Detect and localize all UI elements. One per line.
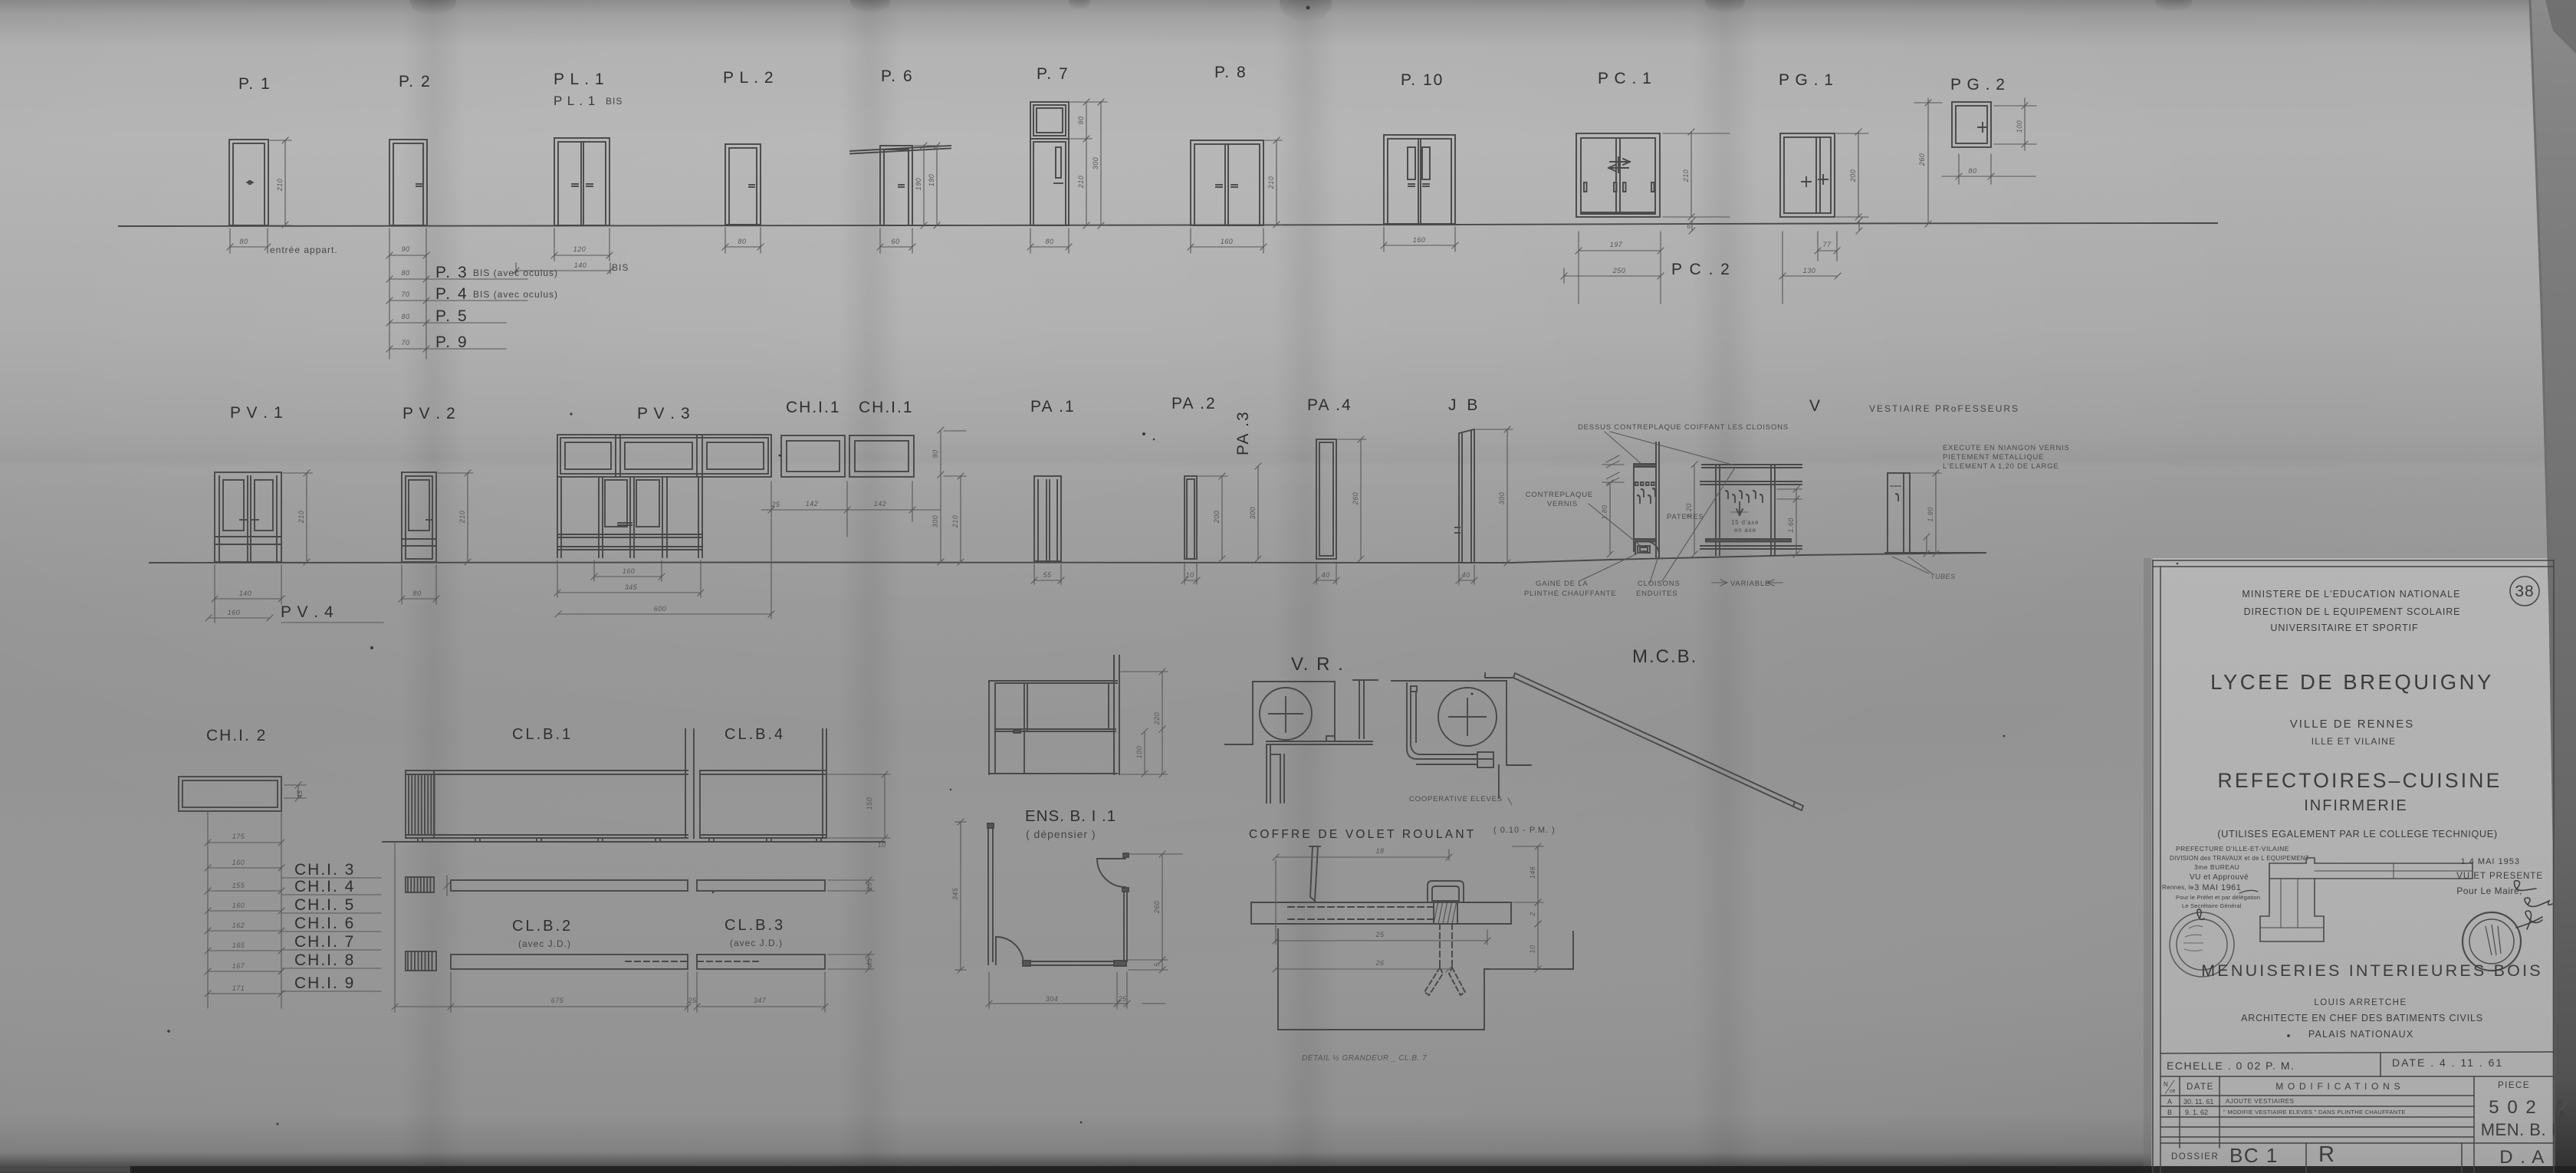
svg-text:B: B (2559, 1110, 2564, 1119)
svg-text:ILLE ET VILAINE: ILLE ET VILAINE (2311, 736, 2397, 747)
svg-text:MENUISERIES INTERIEURES BO: MENUISERIES INTERIEURES BOIS (2201, 961, 2543, 980)
svg-text:ECHELLE . 0 02 P. M.: ECHELLE . 0 02 P. M. (2167, 1060, 2295, 1072)
svg-text:25: 25 (1117, 995, 1127, 1003)
svg-text:80: 80 (738, 238, 746, 245)
svg-text:210: 210 (1682, 169, 1690, 183)
svg-text:160: 160 (623, 567, 636, 575)
svg-text:en axe: en axe (1734, 527, 1756, 534)
svg-text:LYCEE DE BREQUIGNY: LYCEE DE BREQUIGNY (2210, 670, 2494, 694)
svg-text:260: 260 (1153, 901, 1161, 915)
svg-text:CL.B.4: CL.B.4 (724, 726, 785, 743)
svg-text:210: 210 (297, 511, 305, 524)
svg-text:P C . 2: P C . 2 (1671, 261, 1731, 278)
svg-text:304: 304 (1046, 995, 1059, 1003)
svg-text:PIECE: PIECE (2498, 1081, 2530, 1090)
svg-text:UNIVERSITAIRE ET SPORTIF: UNIVERSITAIRE ET SPORTIF (2270, 623, 2418, 633)
svg-text:ce: ce (2170, 1089, 2176, 1094)
svg-text:25: 25 (770, 501, 780, 508)
svg-text:PA .3: PA .3 (1234, 410, 1252, 455)
svg-text:55: 55 (1043, 571, 1052, 579)
svg-text:PREFECTURE D'ILLE-ET-VILAINE: PREFECTURE D'ILLE-ET-VILAINE (2176, 845, 2289, 853)
svg-text:EXECUTE EN NIANGON VERNIS: EXECUTE EN NIANGON VERNIS (1943, 444, 2070, 452)
svg-text:V: V (1809, 397, 1822, 415)
svg-text:P. 4: P. 4 (435, 285, 468, 303)
svg-text:PALAIS NATIONAUX: PALAIS NATIONAUX (2302, 1029, 2414, 1040)
svg-text:" MODIFIE VESTIAIRE ELEVES ": " MODIFIE VESTIAIRE ELEVES " DANS PLINTH… (2223, 1109, 2406, 1115)
svg-text:P. 2: P. 2 (399, 73, 432, 90)
svg-text:PLINTHE CHAUFFANTE: PLINTHE CHAUFFANTE (1524, 590, 1617, 598)
svg-text:DIVISION des TRAVAUX et de L E: DIVISION des TRAVAUX et de L EQUIPEMENT (2170, 855, 2309, 862)
svg-text:2: 2 (1529, 912, 1536, 917)
svg-text:P V . 3: P V . 3 (637, 405, 691, 422)
svg-text:CH.I. 6: CH.I. 6 (294, 915, 355, 932)
svg-text:120: 120 (573, 245, 586, 253)
svg-text:Le Secrétaire Général: Le Secrétaire Général (2182, 902, 2242, 909)
svg-text:38: 38 (2515, 583, 2534, 600)
svg-text:ENDUITES: ENDUITES (1636, 590, 1677, 598)
svg-text:COOPERATIVE ELEVES: COOPERATIVE ELEVES (1409, 795, 1503, 803)
svg-text:260: 260 (1352, 492, 1359, 506)
svg-text:160: 160 (1221, 238, 1234, 245)
svg-text:Pour le Préfet et par délégati: Pour le Préfet et par délégation (2176, 894, 2260, 901)
svg-text:( dépensier ): ( dépensier ) (1026, 828, 1096, 840)
svg-text:70: 70 (401, 291, 409, 298)
svg-text:ARCHITECTE EN CHEF DES BAT: ARCHITECTE EN CHEF DES BATIMENTS CIVILS (2241, 1013, 2483, 1024)
svg-text:260: 260 (1918, 153, 1926, 167)
svg-text:( 0.10 - P.M. ): ( 0.10 - P.M. ) (1493, 826, 1556, 835)
svg-text:130: 130 (1803, 267, 1816, 274)
svg-text:ENS. B. I .1: ENS. B. I .1 (1025, 807, 1116, 825)
svg-text:3me BUREAU: 3me BUREAU (2194, 863, 2239, 871)
svg-text:160: 160 (228, 609, 241, 616)
svg-text:345: 345 (951, 887, 959, 900)
svg-text:DOSSIER: DOSSIER (2171, 1152, 2219, 1161)
svg-text:BC 1: BC 1 (2229, 1144, 2279, 1167)
svg-text:DESSUS CONTREPLAQUE COIFFANT: DESSUS CONTREPLAQUE COIFFANT LES CLOISON… (1578, 423, 1789, 432)
svg-text:-3 MAI 1961: -3 MAI 1961 (2191, 883, 2241, 892)
svg-text:P. 10: P. 10 (1401, 71, 1444, 89)
svg-text:5 0 2: 5 0 2 (2489, 1097, 2537, 1118)
svg-text:CONTREPLAQUE: CONTREPLAQUE (1526, 491, 1593, 499)
svg-text:80: 80 (1968, 167, 1976, 175)
svg-text:77: 77 (1822, 241, 1832, 248)
svg-text:P. 8: P. 8 (1214, 64, 1247, 81)
svg-text:167: 167 (232, 962, 245, 970)
svg-text:LOUIS ARRETCHE: LOUIS ARRETCHE (2314, 998, 2407, 1007)
svg-text:210: 210 (1077, 176, 1085, 189)
svg-text:200: 200 (1849, 169, 1857, 183)
svg-text:80: 80 (239, 238, 248, 245)
svg-text:80: 80 (1045, 238, 1053, 245)
svg-text:160: 160 (232, 859, 245, 866)
svg-text:140: 140 (239, 590, 252, 597)
svg-text:P C . 1: P C . 1 (1598, 70, 1652, 87)
svg-text:CH.I.1: CH.I.1 (786, 399, 841, 416)
svg-text:MEN. B. I: MEN. B. I (2481, 1120, 2557, 1139)
svg-text:CH.I. 3: CH.I. 3 (294, 861, 355, 879)
svg-text:162: 162 (232, 922, 245, 929)
svg-text:150: 150 (866, 797, 873, 810)
svg-text:45: 45 (296, 790, 304, 799)
svg-text:5: 5 (1153, 962, 1161, 967)
svg-text:155: 155 (232, 882, 245, 889)
svg-text:P L . 1: P L . 1 (554, 71, 605, 88)
svg-text:GAINE DE LA: GAINE DE LA (1536, 580, 1588, 588)
svg-text:190: 190 (928, 174, 935, 187)
svg-text:165: 165 (232, 941, 245, 949)
svg-text:9. 1. 62: 9. 1. 62 (2185, 1109, 2208, 1116)
svg-text:PIETEMENT METALLIQUE: PIETEMENT METALLIQUE (1943, 453, 2044, 462)
svg-text:P V . 2: P V . 2 (402, 405, 456, 422)
svg-text:VESTIAIRE PRoFESSEURS: VESTIAIRE PRoFESSEURS (1869, 403, 2019, 414)
svg-text:TUBES: TUBES (1930, 573, 1956, 580)
svg-text:6: 6 (1687, 222, 1691, 230)
svg-text:M.C.B.: M.C.B. (1632, 646, 1697, 667)
svg-text:300: 300 (1092, 157, 1099, 170)
svg-text:CH.I.1: CH.I.1 (859, 399, 914, 416)
svg-text:(avec J.D.): (avec J.D.) (730, 938, 783, 948)
svg-text:90: 90 (932, 449, 939, 458)
svg-text:Pour Le Maire,: Pour Le Maire, (2456, 886, 2522, 896)
svg-text:25: 25 (1375, 931, 1385, 938)
svg-text:AJOUTE VESTIAIRES: AJOUTE VESTIAIRES (2226, 1098, 2294, 1105)
svg-text:PA .1: PA .1 (1030, 398, 1076, 416)
svg-text:A: A (2167, 1098, 2172, 1106)
svg-text:140: 140 (574, 261, 587, 269)
svg-text:CH.I. 2: CH.I. 2 (206, 727, 267, 744)
svg-text:P G . 2: P G . 2 (1950, 76, 2006, 94)
svg-text:345: 345 (625, 583, 638, 591)
svg-text:P. 7: P. 7 (1037, 65, 1069, 83)
svg-text:CH.I. 8: CH.I. 8 (294, 951, 355, 969)
svg-text:347: 347 (754, 997, 767, 1004)
svg-text:V. R .: V. R . (1291, 654, 1345, 675)
svg-text:25: 25 (687, 997, 697, 1004)
svg-text:210: 210 (951, 515, 959, 529)
svg-text:40: 40 (1461, 571, 1470, 579)
svg-text:CH.I. 4: CH.I. 4 (294, 878, 355, 895)
svg-text:VARIABLE: VARIABLE (1730, 580, 1770, 588)
svg-text:DATE . 4 . 11 . 61: DATE . 4 . 11 . 61 (2392, 1056, 2503, 1069)
svg-text:CH.I. 5: CH.I. 5 (294, 896, 355, 914)
svg-text:CH.I. 7: CH.I. 7 (294, 933, 355, 951)
svg-text:1 4 MAI 1953: 1 4 MAI 1953 (2461, 857, 2520, 866)
svg-text:COFFRE DE VOLET ROULANT: COFFRE DE VOLET ROULANT (1249, 828, 1476, 841)
svg-text:entrée appart.: entrée appart. (270, 245, 338, 255)
svg-text:45: 45 (866, 958, 873, 967)
svg-text:P. 3: P. 3 (435, 264, 468, 281)
svg-text:220: 220 (1153, 712, 1161, 726)
svg-text:CLOISONS: CLOISONS (1638, 580, 1681, 588)
svg-text:10: 10 (1185, 571, 1194, 579)
svg-text:160: 160 (1413, 236, 1426, 244)
svg-text:210: 210 (458, 511, 466, 524)
svg-text:DATE: DATE (2187, 1083, 2214, 1092)
svg-text:146: 146 (1529, 866, 1536, 879)
svg-text:142: 142 (874, 500, 887, 508)
svg-text:30. 11. 61: 30. 11. 61 (2183, 1098, 2213, 1106)
svg-text:25: 25 (866, 882, 873, 892)
svg-text:90: 90 (401, 245, 409, 253)
svg-text:BIS: BIS (612, 262, 629, 273)
svg-text:80: 80 (401, 313, 409, 320)
svg-text:CL.B.3: CL.B.3 (724, 917, 785, 934)
svg-text:100: 100 (1135, 746, 1143, 759)
svg-text:26: 26 (1375, 959, 1384, 967)
svg-text:P. 6: P. 6 (881, 67, 914, 85)
svg-text:REFECTOIRES–CUISINE: REFECTOIRES–CUISINE (2217, 769, 2502, 792)
svg-text:70: 70 (401, 339, 409, 347)
svg-text:Rennes, le: Rennes, le (2162, 884, 2193, 891)
svg-text:1.60: 1.60 (1787, 517, 1795, 533)
svg-text:250: 250 (1612, 267, 1626, 274)
svg-text:P. 5: P. 5 (435, 307, 468, 325)
svg-text:10: 10 (1529, 945, 1536, 953)
svg-text:200: 200 (1213, 511, 1221, 524)
svg-text:1.90: 1.90 (1927, 507, 1934, 522)
svg-text:(UTILISES EGALEMENT PAR LE: (UTILISES EGALEMENT PAR LE COLLEGE TECHN… (2217, 828, 2498, 839)
svg-text:MINISTERE DE L'EDUCATION NA: MINISTERE DE L'EDUCATION NATIONALE (2242, 589, 2460, 600)
svg-text:CL.B.1: CL.B.1 (512, 726, 573, 743)
svg-text:P V . 1: P V . 1 (230, 404, 284, 422)
svg-text:N: N (2164, 1081, 2168, 1088)
svg-text:10: 10 (877, 841, 886, 849)
svg-text:R: R (2318, 1142, 2336, 1167)
svg-text:300: 300 (932, 515, 939, 528)
svg-text:600: 600 (654, 605, 667, 613)
svg-text:BIS: BIS (606, 96, 623, 107)
svg-text:P. 9: P. 9 (435, 333, 468, 351)
svg-text:90: 90 (1077, 116, 1085, 124)
svg-text:VU ET PRESENTE: VU ET PRESENTE (2456, 872, 2543, 881)
svg-text:BIS (avec oculus): BIS (avec oculus) (473, 289, 558, 300)
svg-text:190: 190 (915, 178, 922, 191)
svg-text:INFIRMERIE: INFIRMERIE (2304, 797, 2408, 814)
svg-text:60: 60 (891, 238, 899, 245)
svg-text:210: 210 (276, 179, 284, 192)
svg-text:CL.B.2: CL.B.2 (512, 918, 573, 935)
svg-text:210: 210 (1267, 176, 1275, 190)
svg-text:PA .4: PA .4 (1307, 396, 1352, 414)
svg-text:VU et Approuvé: VU et Approuvé (2190, 873, 2249, 882)
svg-text:175: 175 (232, 833, 245, 840)
svg-text:P. 1: P. 1 (238, 75, 271, 93)
svg-text:171: 171 (232, 984, 245, 992)
svg-text:VERNIS: VERNIS (1547, 500, 1578, 508)
svg-text:18: 18 (1375, 847, 1384, 855)
svg-text:675: 675 (551, 997, 564, 1004)
svg-text:J B: J B (1448, 396, 1480, 414)
svg-text:300: 300 (1249, 507, 1257, 520)
svg-text:L'ELEMENT A 1,20 DE LARGE: L'ELEMENT A 1,20 DE LARGE (1943, 462, 2059, 471)
svg-text:P G . 1: P G . 1 (1779, 71, 1834, 89)
svg-text:80: 80 (401, 269, 409, 277)
svg-text:15 d'axe: 15 d'axe (1731, 519, 1759, 526)
svg-text:(avec J.D.): (avec J.D.) (518, 938, 571, 949)
svg-text:BIS (avec oculus): BIS (avec oculus) (473, 268, 558, 278)
svg-text:80: 80 (412, 590, 421, 597)
svg-text:VILLE DE RENNES: VILLE DE RENNES (2290, 718, 2415, 731)
svg-text:M O D I F I C A T I O N S: M O D I F I C A T I O N S (2275, 1081, 2401, 1092)
svg-text:P L . 1: P L . 1 (554, 94, 596, 108)
svg-text:A: A (2558, 1099, 2563, 1107)
svg-text:197: 197 (1610, 241, 1623, 248)
svg-text:P L . 2: P L . 2 (723, 69, 774, 87)
svg-text:300: 300 (1498, 492, 1506, 505)
svg-text:40: 40 (1321, 571, 1329, 579)
svg-text:D . A: D . A (2499, 1147, 2545, 1168)
svg-text:PA .2: PA .2 (1171, 395, 1217, 412)
svg-text:2.20: 2.20 (1685, 503, 1693, 519)
svg-text:142: 142 (806, 500, 819, 508)
svg-text:B: B (2167, 1109, 2172, 1116)
svg-text:100: 100 (2016, 120, 2023, 133)
svg-text:P V . 4: P V . 4 (281, 603, 334, 621)
svg-text:1.80: 1.80 (1601, 504, 1608, 520)
svg-text:DIRECTION DE L EQUIPEMENT S: DIRECTION DE L EQUIPEMENT SCOLAIRE (2244, 606, 2461, 617)
svg-text:CH.I. 9: CH.I. 9 (294, 974, 355, 992)
svg-text:DETAIL ½ GRANDEUR _ CL.B. 7: DETAIL ½ GRANDEUR _ CL.B. 7 (1302, 1054, 1427, 1063)
svg-text:160: 160 (232, 902, 245, 909)
